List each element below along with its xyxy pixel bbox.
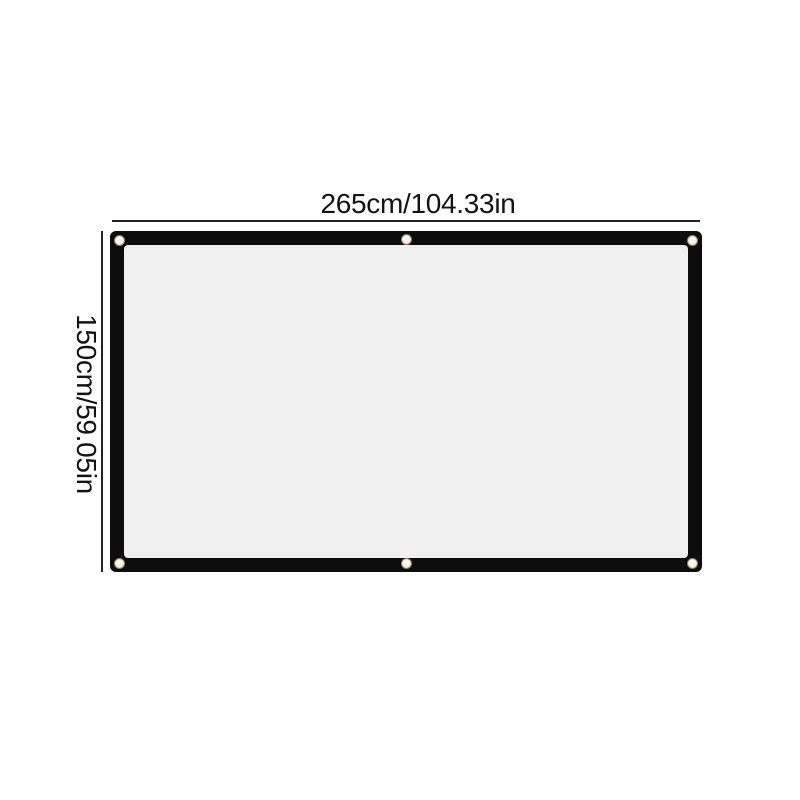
product-dimension-diagram: 265cm/104.33in 150cm/59.05in (0, 0, 800, 800)
grommet-bottom-middle-icon (401, 558, 412, 569)
grommet-top-right-icon (687, 235, 698, 246)
projector-screen-frame (110, 231, 702, 572)
grommet-top-left-icon (114, 235, 125, 246)
screen-surface (124, 245, 688, 558)
width-dimension-label: 265cm/104.33in (320, 190, 515, 218)
grommet-bottom-left-icon (114, 558, 125, 569)
grommet-bottom-right-icon (687, 558, 698, 569)
grommet-top-middle-icon (401, 234, 412, 245)
width-dimension-line (112, 220, 700, 222)
height-dimension-label: 150cm/59.05in (72, 314, 100, 494)
height-dimension-line (101, 231, 103, 572)
